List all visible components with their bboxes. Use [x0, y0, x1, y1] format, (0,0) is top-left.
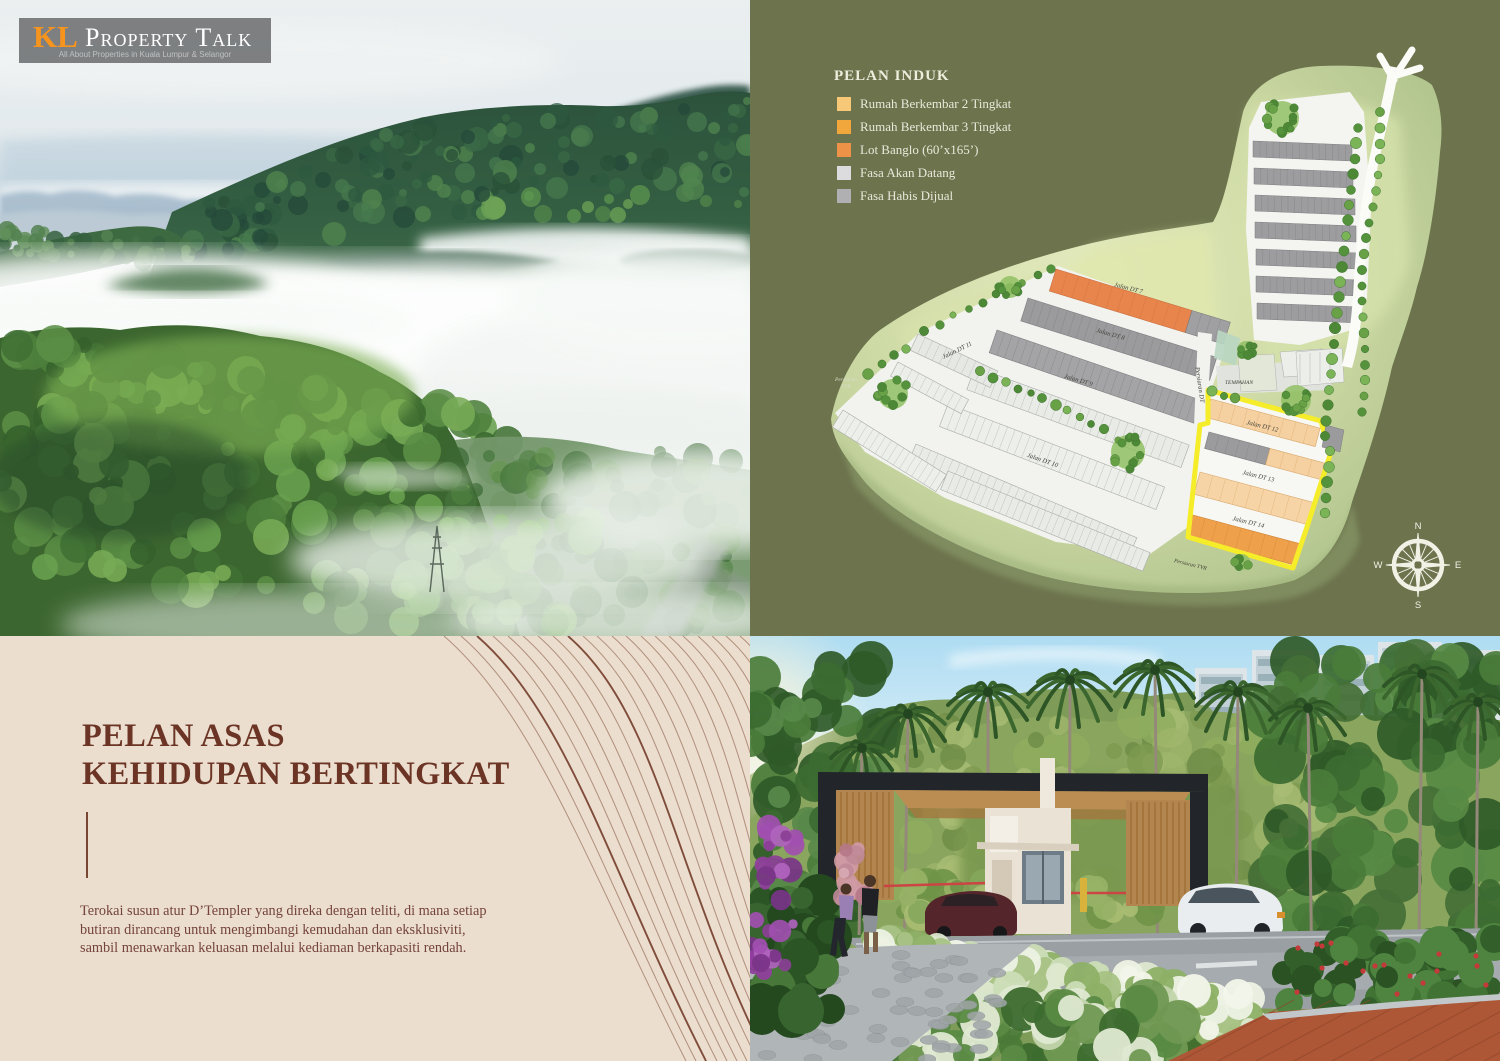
svg-text:S: S: [1415, 600, 1421, 611]
svg-text:E: E: [1455, 560, 1461, 571]
svg-text:N: N: [1415, 521, 1422, 532]
svg-text:W: W: [1374, 560, 1383, 571]
svg-text:TEMPAHAN: TEMPAHAN: [1225, 380, 1253, 386]
svg-text:TVR: TVR: [841, 384, 851, 390]
svg-text:Persiaran: Persiaran: [834, 377, 857, 383]
